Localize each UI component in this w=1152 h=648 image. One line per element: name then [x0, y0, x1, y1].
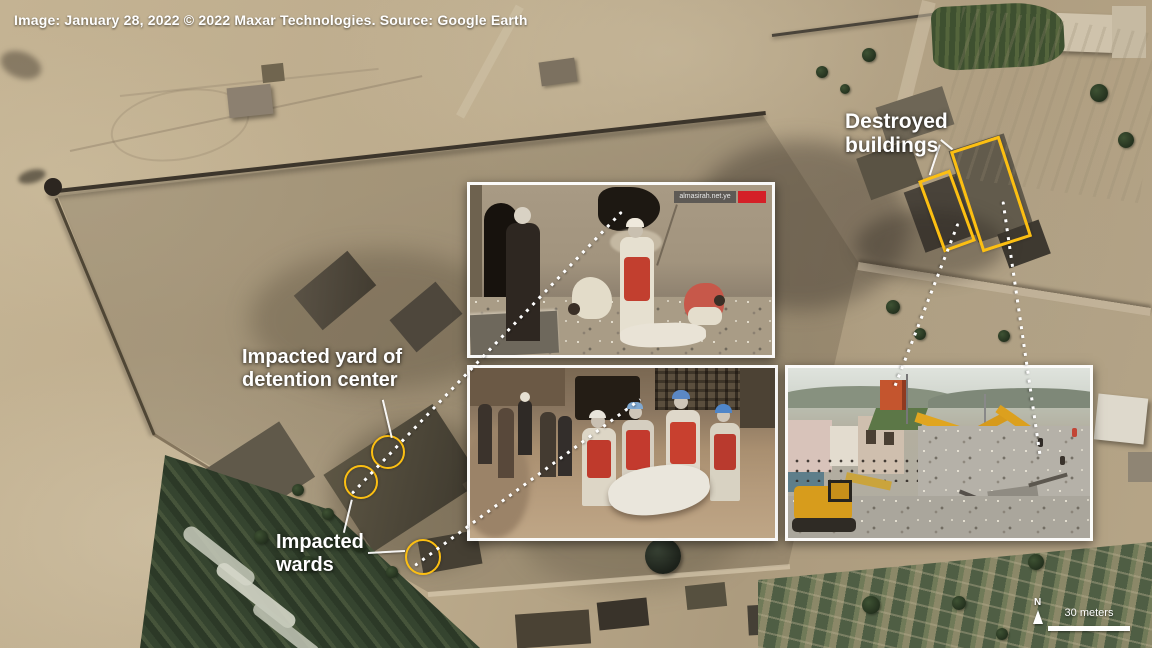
bystander [498, 408, 514, 478]
wall-left-edge [470, 185, 482, 305]
wall-dark-band [740, 368, 775, 428]
tree [952, 596, 966, 610]
rescuer-blue-cap [672, 390, 690, 399]
excavator-tracks [792, 518, 856, 532]
image-source-caption: Image: January 28, 2022 © 2022 Maxar Tec… [14, 12, 528, 28]
bystander [518, 400, 532, 455]
tree [322, 508, 334, 520]
rescuer-red-vest [670, 422, 696, 464]
bystander [478, 404, 492, 464]
man-head [514, 207, 531, 224]
figure-head [568, 303, 580, 315]
rescuer-blue-cap [715, 404, 732, 413]
building [261, 63, 285, 83]
building-opening [884, 432, 894, 445]
bystander [558, 416, 572, 476]
tree [998, 330, 1010, 342]
bystander-head [520, 392, 530, 402]
inset-photo-excavators-rubble [785, 365, 1093, 541]
building-opening [866, 430, 876, 444]
almasirah-logo [738, 191, 766, 203]
tree [386, 566, 398, 578]
watermark-bar: almasirah.net.ye [674, 191, 736, 203]
rescuer-cap [589, 410, 606, 418]
tree [1028, 554, 1044, 570]
north-arrow-icon [1033, 610, 1043, 624]
rescuer-cap [626, 218, 644, 227]
tree [1090, 84, 1108, 102]
lattice-wall [655, 368, 740, 410]
building [685, 582, 727, 610]
worker-dot [1060, 456, 1065, 465]
rescuer-red-vest [587, 440, 611, 478]
building [597, 597, 650, 630]
label-impacted-yard: Impacted yard of detention center [242, 346, 417, 392]
label-impacted-wards: Impacted wards [276, 531, 381, 577]
building [1128, 452, 1152, 482]
tree [886, 300, 900, 314]
water-tank [645, 538, 681, 574]
rescuer-red-vest [714, 434, 736, 470]
inset-photo-rescuers-carrying [467, 365, 778, 541]
corner-tower [44, 178, 62, 196]
tree [1118, 132, 1134, 148]
tree [840, 84, 850, 94]
tree [292, 484, 304, 496]
utility-pole [906, 374, 908, 424]
worker-dot [1072, 428, 1077, 437]
excavator-cab [828, 480, 852, 502]
building [227, 84, 274, 118]
figure-head [714, 295, 725, 306]
building [515, 609, 591, 648]
tree [862, 48, 876, 62]
mud-wall [470, 368, 565, 406]
tree [816, 66, 828, 78]
inset-photo-destroyed-wall: almasirah.net.ye [467, 182, 775, 358]
figure-white-lower [688, 307, 722, 325]
north-label: N [1034, 597, 1041, 608]
building [539, 58, 578, 87]
rescuer-red-vest [624, 257, 650, 301]
annotated-satellite-graphic: almasirah.net.ye [0, 0, 1152, 648]
tree [862, 596, 880, 614]
rescuer-red-vest [626, 430, 650, 470]
light-building [1094, 394, 1149, 445]
scale-bar [1048, 626, 1130, 631]
tree [254, 530, 268, 544]
scale-distance-label: 30 meters [1048, 607, 1130, 619]
tree [996, 628, 1008, 640]
label-destroyed-buildings: Destroyed buildings [845, 110, 957, 159]
